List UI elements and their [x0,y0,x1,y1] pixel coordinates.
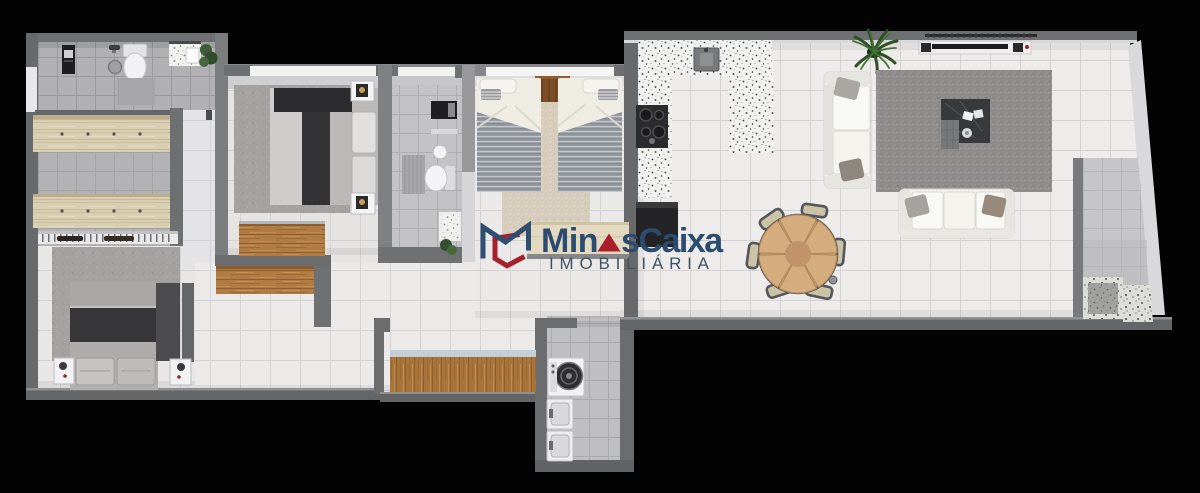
svg-text:IMOBILIÁRIA: IMOBILIÁRIA [549,254,715,273]
